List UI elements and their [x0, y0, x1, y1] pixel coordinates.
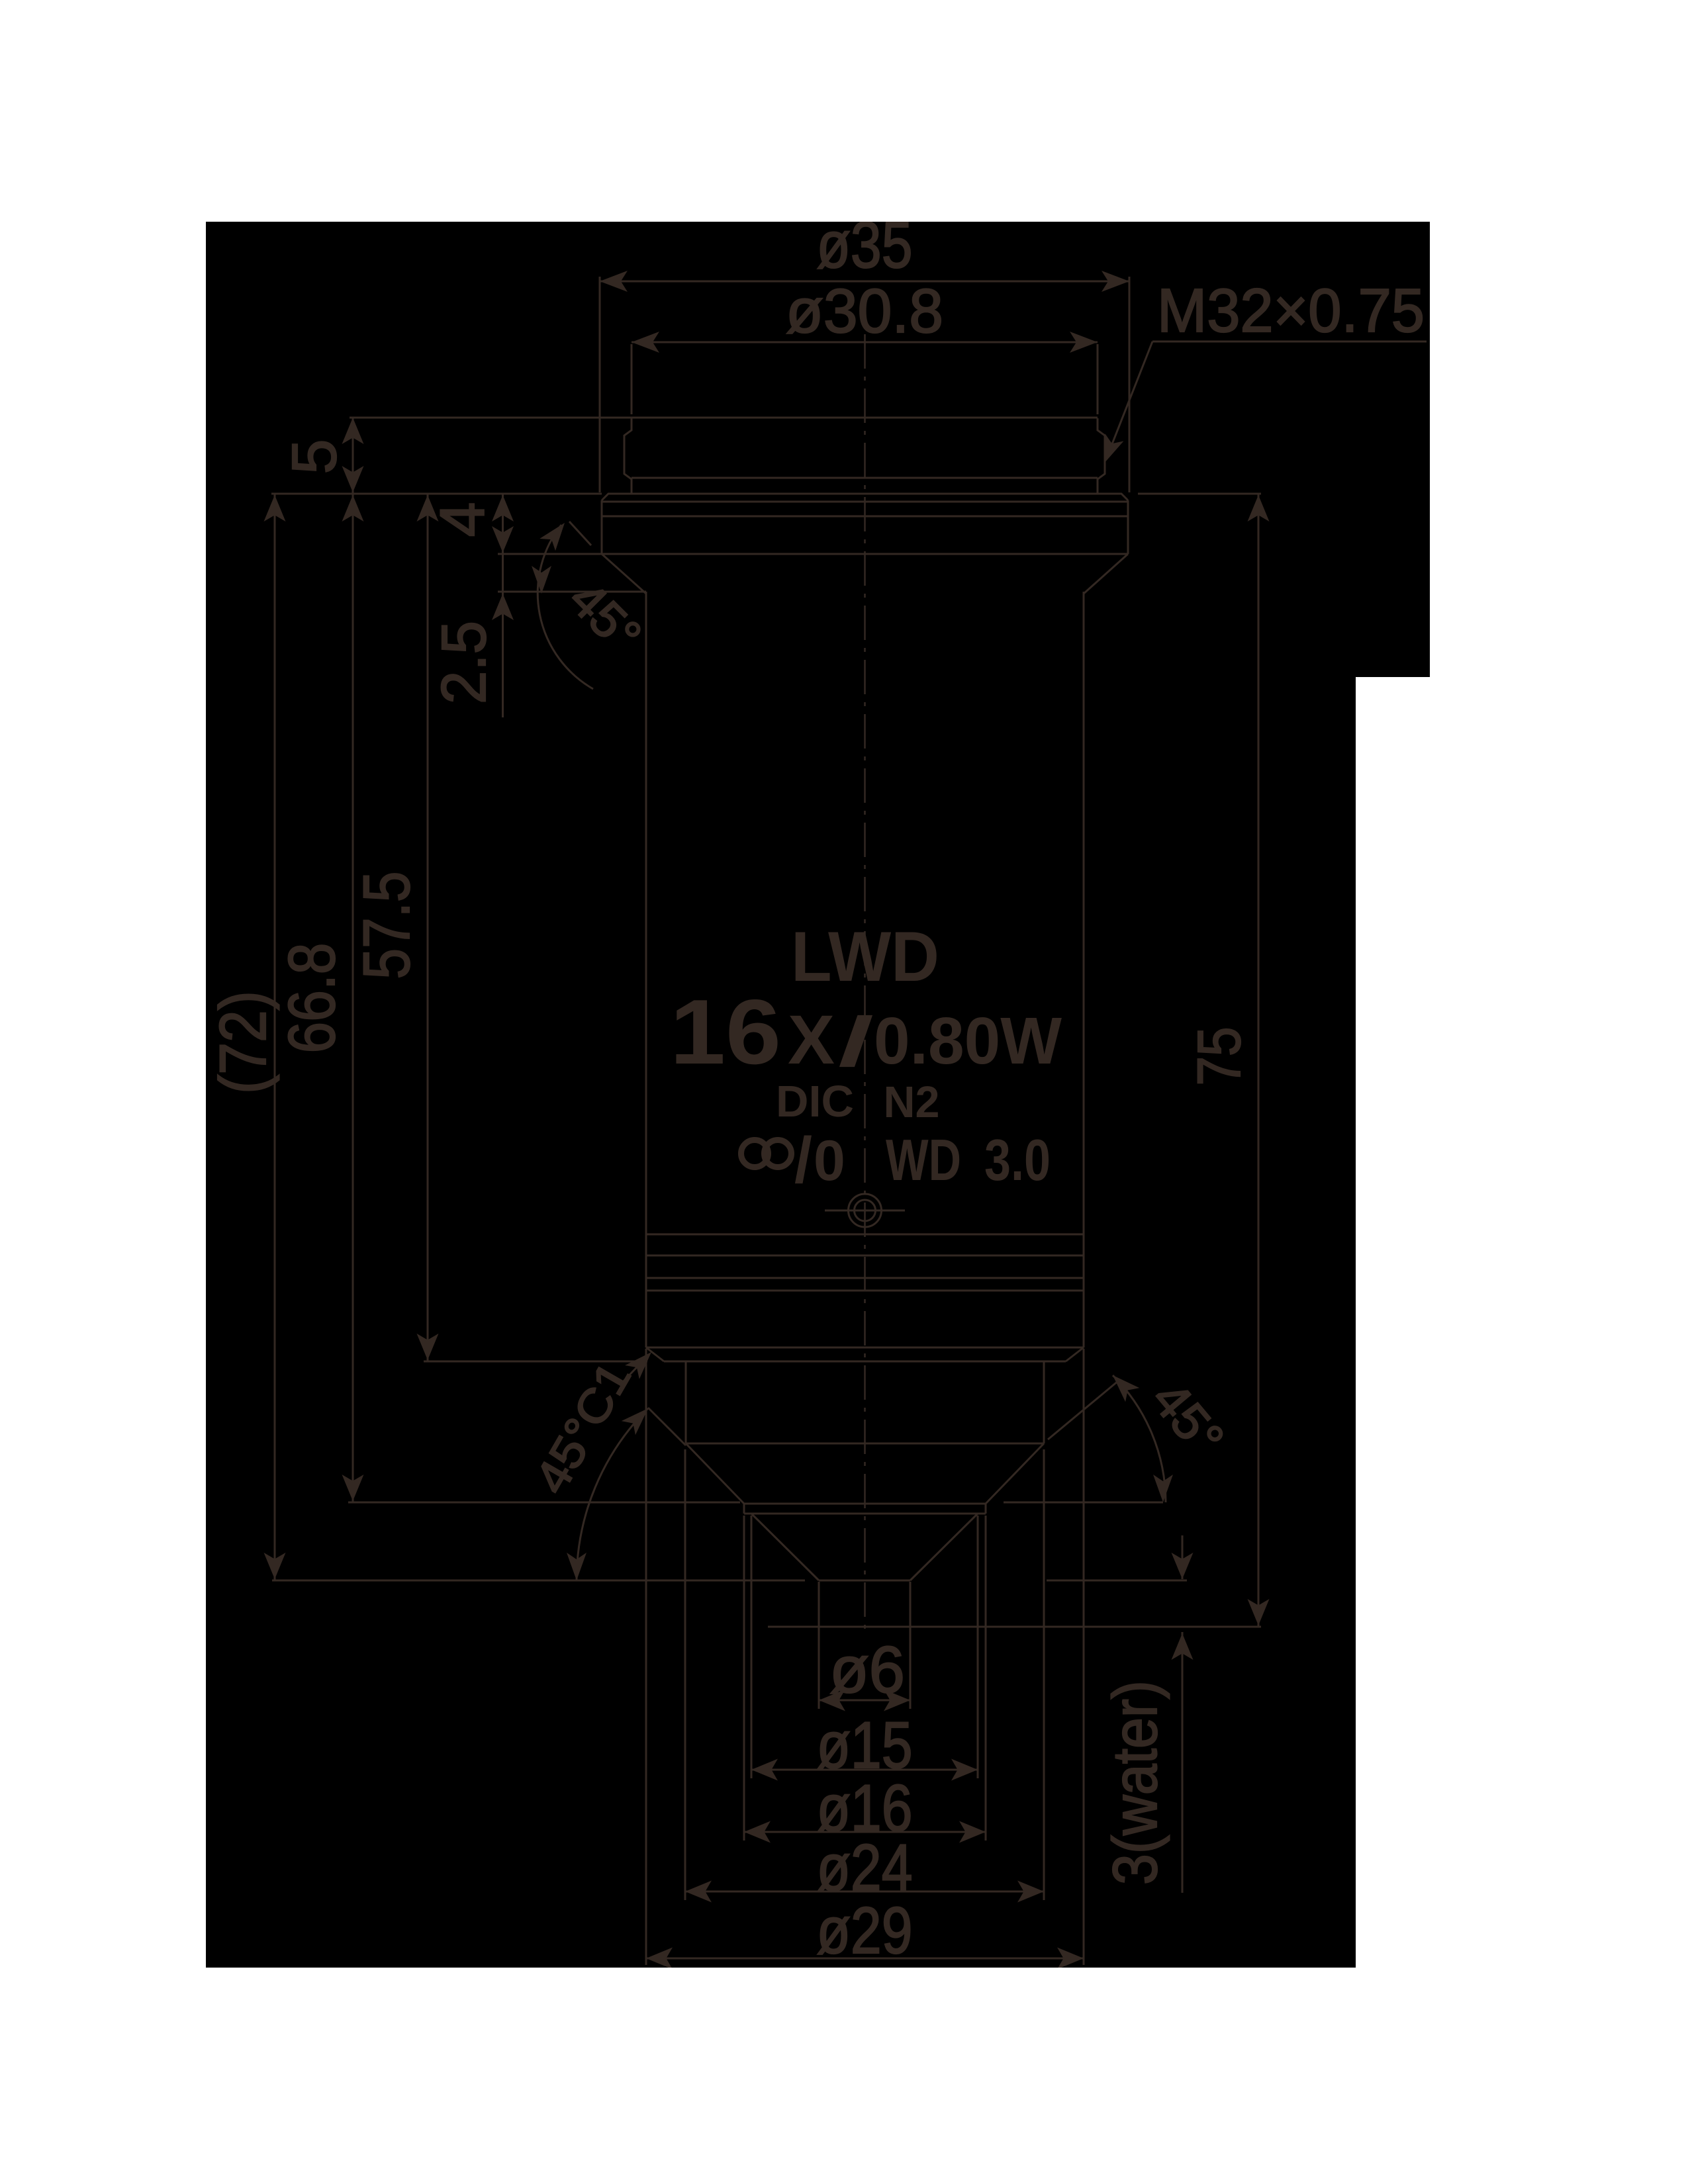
svg-text:WD: WD: [886, 1127, 961, 1193]
svg-text:75: 75: [1186, 1027, 1253, 1086]
svg-text:/: /: [838, 1003, 874, 1081]
svg-text:66.8: 66.8: [275, 943, 348, 1054]
svg-text:X: X: [788, 1001, 835, 1079]
svg-text:ø6: ø6: [829, 1633, 905, 1706]
svg-text:2.5: 2.5: [429, 621, 499, 704]
svg-text:4: 4: [428, 502, 498, 537]
svg-text:M32×0.75: M32×0.75: [1157, 276, 1425, 345]
svg-text:0: 0: [814, 1129, 845, 1193]
svg-text:57.5: 57.5: [350, 872, 423, 979]
svg-text:ø35: ø35: [817, 208, 913, 281]
svg-text:ø30.8: ø30.8: [786, 276, 943, 345]
svg-text:ø29: ø29: [817, 1893, 913, 1967]
svg-text:LWD: LWD: [791, 917, 939, 996]
svg-text:/: /: [794, 1124, 812, 1196]
svg-text:3.0: 3.0: [984, 1127, 1051, 1193]
svg-text:0.80W: 0.80W: [874, 1004, 1062, 1078]
svg-text:16: 16: [670, 981, 781, 1083]
svg-text:5: 5: [279, 439, 350, 475]
svg-text:(72): (72): [206, 991, 279, 1094]
svg-text:N2: N2: [884, 1077, 940, 1127]
svg-text:DIC: DIC: [776, 1077, 854, 1126]
svg-text:3(water): 3(water): [1100, 1680, 1170, 1885]
